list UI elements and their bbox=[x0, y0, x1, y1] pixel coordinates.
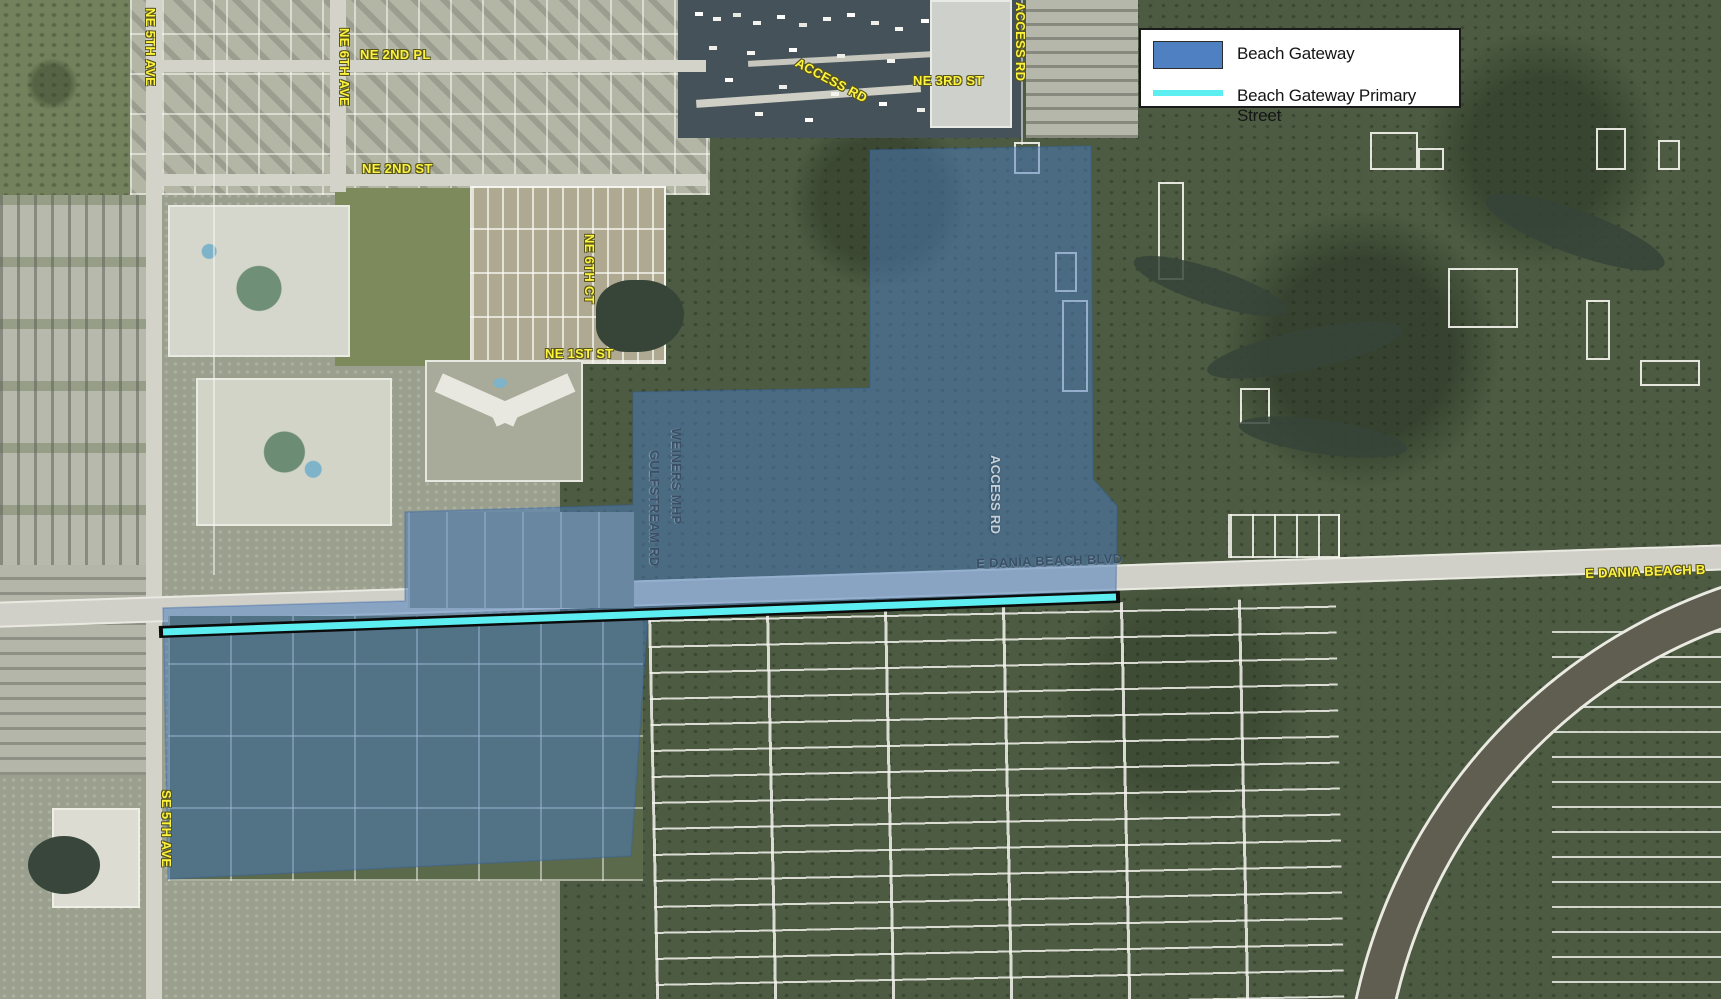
legend-label-beach-gateway: Beach Gateway bbox=[1237, 44, 1354, 64]
street-label-ne-3rd-st: NE 3RD ST bbox=[913, 73, 984, 88]
street-label-access-rd-overlay: ACCESS RD bbox=[988, 455, 1003, 534]
street-label-ne-2nd-st: NE 2ND ST bbox=[362, 161, 433, 176]
legend-label-primary-street: Beach Gateway Primary Street bbox=[1237, 86, 1459, 126]
street-label-ne-5th-ave: NE 5TH AVE bbox=[143, 8, 158, 86]
beach-gateway-overlay bbox=[0, 0, 1721, 999]
street-label-ne-6th-ave: NE 6TH AVE bbox=[337, 28, 352, 106]
street-label-access-rd-north: ACCESS RD bbox=[1013, 2, 1028, 81]
beach-gateway-area-polygon bbox=[163, 146, 1117, 879]
legend: Beach Gateway Beach Gateway Primary Stre… bbox=[1139, 28, 1461, 108]
street-label-gulfstream-rd: GULFSTREAM RD bbox=[647, 450, 662, 567]
street-label-ne-2nd-pl: NE 2ND PL bbox=[360, 47, 431, 62]
street-label-weiners-mhp: WEINERS MHP bbox=[669, 428, 684, 524]
legend-line-swatch bbox=[1153, 90, 1223, 96]
street-label-ne-1st-st: NE 1ST ST bbox=[545, 346, 613, 361]
street-label-se-5th-ave: SE 5TH AVE bbox=[159, 790, 174, 867]
legend-area-swatch bbox=[1153, 41, 1223, 69]
street-label-ne-6th-ct: NE 6TH CT bbox=[582, 234, 597, 304]
map-canvas[interactable]: NE 5TH AVE NE 6TH AVE NE 2ND PL NE 2ND S… bbox=[0, 0, 1721, 999]
